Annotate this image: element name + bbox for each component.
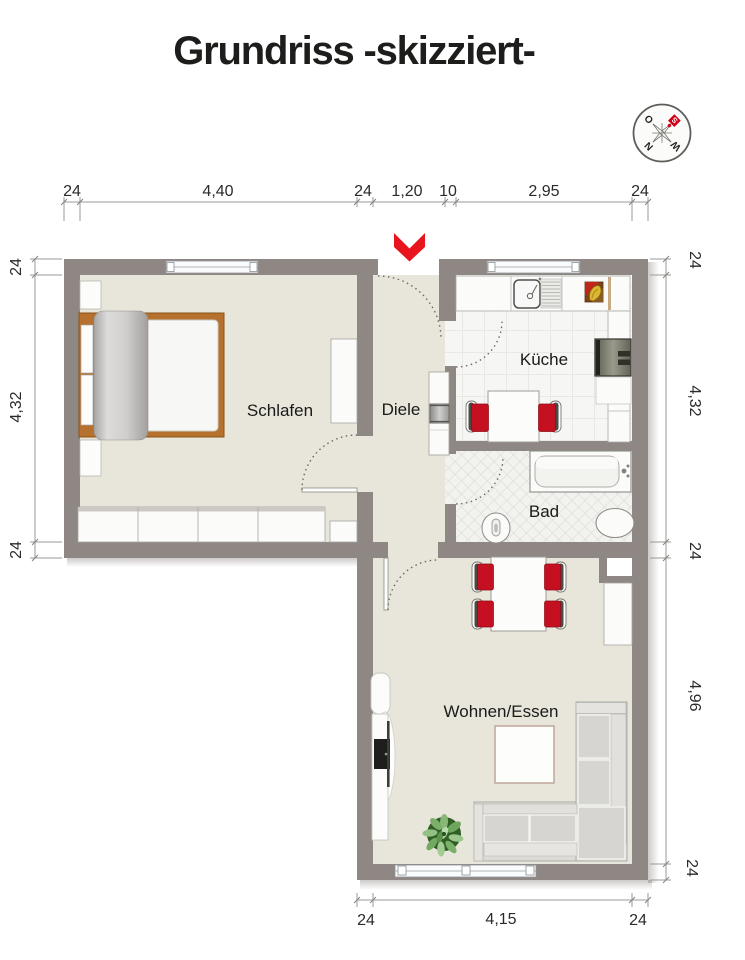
svg-text:2,95: 2,95	[528, 183, 559, 200]
svg-text:Grundriss -skizziert-: Grundriss -skizziert-	[173, 29, 535, 73]
svg-text:10: 10	[439, 183, 457, 200]
svg-text:24: 24	[686, 542, 703, 560]
svg-text:4,32: 4,32	[686, 385, 703, 416]
svg-text:24: 24	[357, 912, 375, 929]
svg-text:24: 24	[63, 183, 81, 200]
svg-text:4,32: 4,32	[8, 391, 25, 422]
svg-text:24: 24	[8, 541, 25, 559]
svg-text:24: 24	[354, 183, 372, 200]
svg-text:Diele: Diele	[382, 400, 421, 419]
svg-text:4,40: 4,40	[202, 183, 233, 200]
svg-text:1,20: 1,20	[391, 183, 422, 200]
svg-text:24: 24	[8, 258, 25, 276]
svg-text:4,15: 4,15	[485, 911, 516, 928]
svg-text:Schlafen: Schlafen	[247, 401, 313, 420]
svg-text:Wohnen/Essen: Wohnen/Essen	[444, 702, 559, 721]
svg-text:24: 24	[683, 859, 700, 877]
svg-text:24: 24	[629, 912, 647, 929]
svg-text:Küche: Küche	[520, 350, 568, 369]
svg-text:24: 24	[631, 183, 649, 200]
svg-text:Bad: Bad	[529, 502, 559, 521]
svg-text:24: 24	[686, 251, 703, 269]
svg-text:4,96: 4,96	[686, 680, 703, 711]
